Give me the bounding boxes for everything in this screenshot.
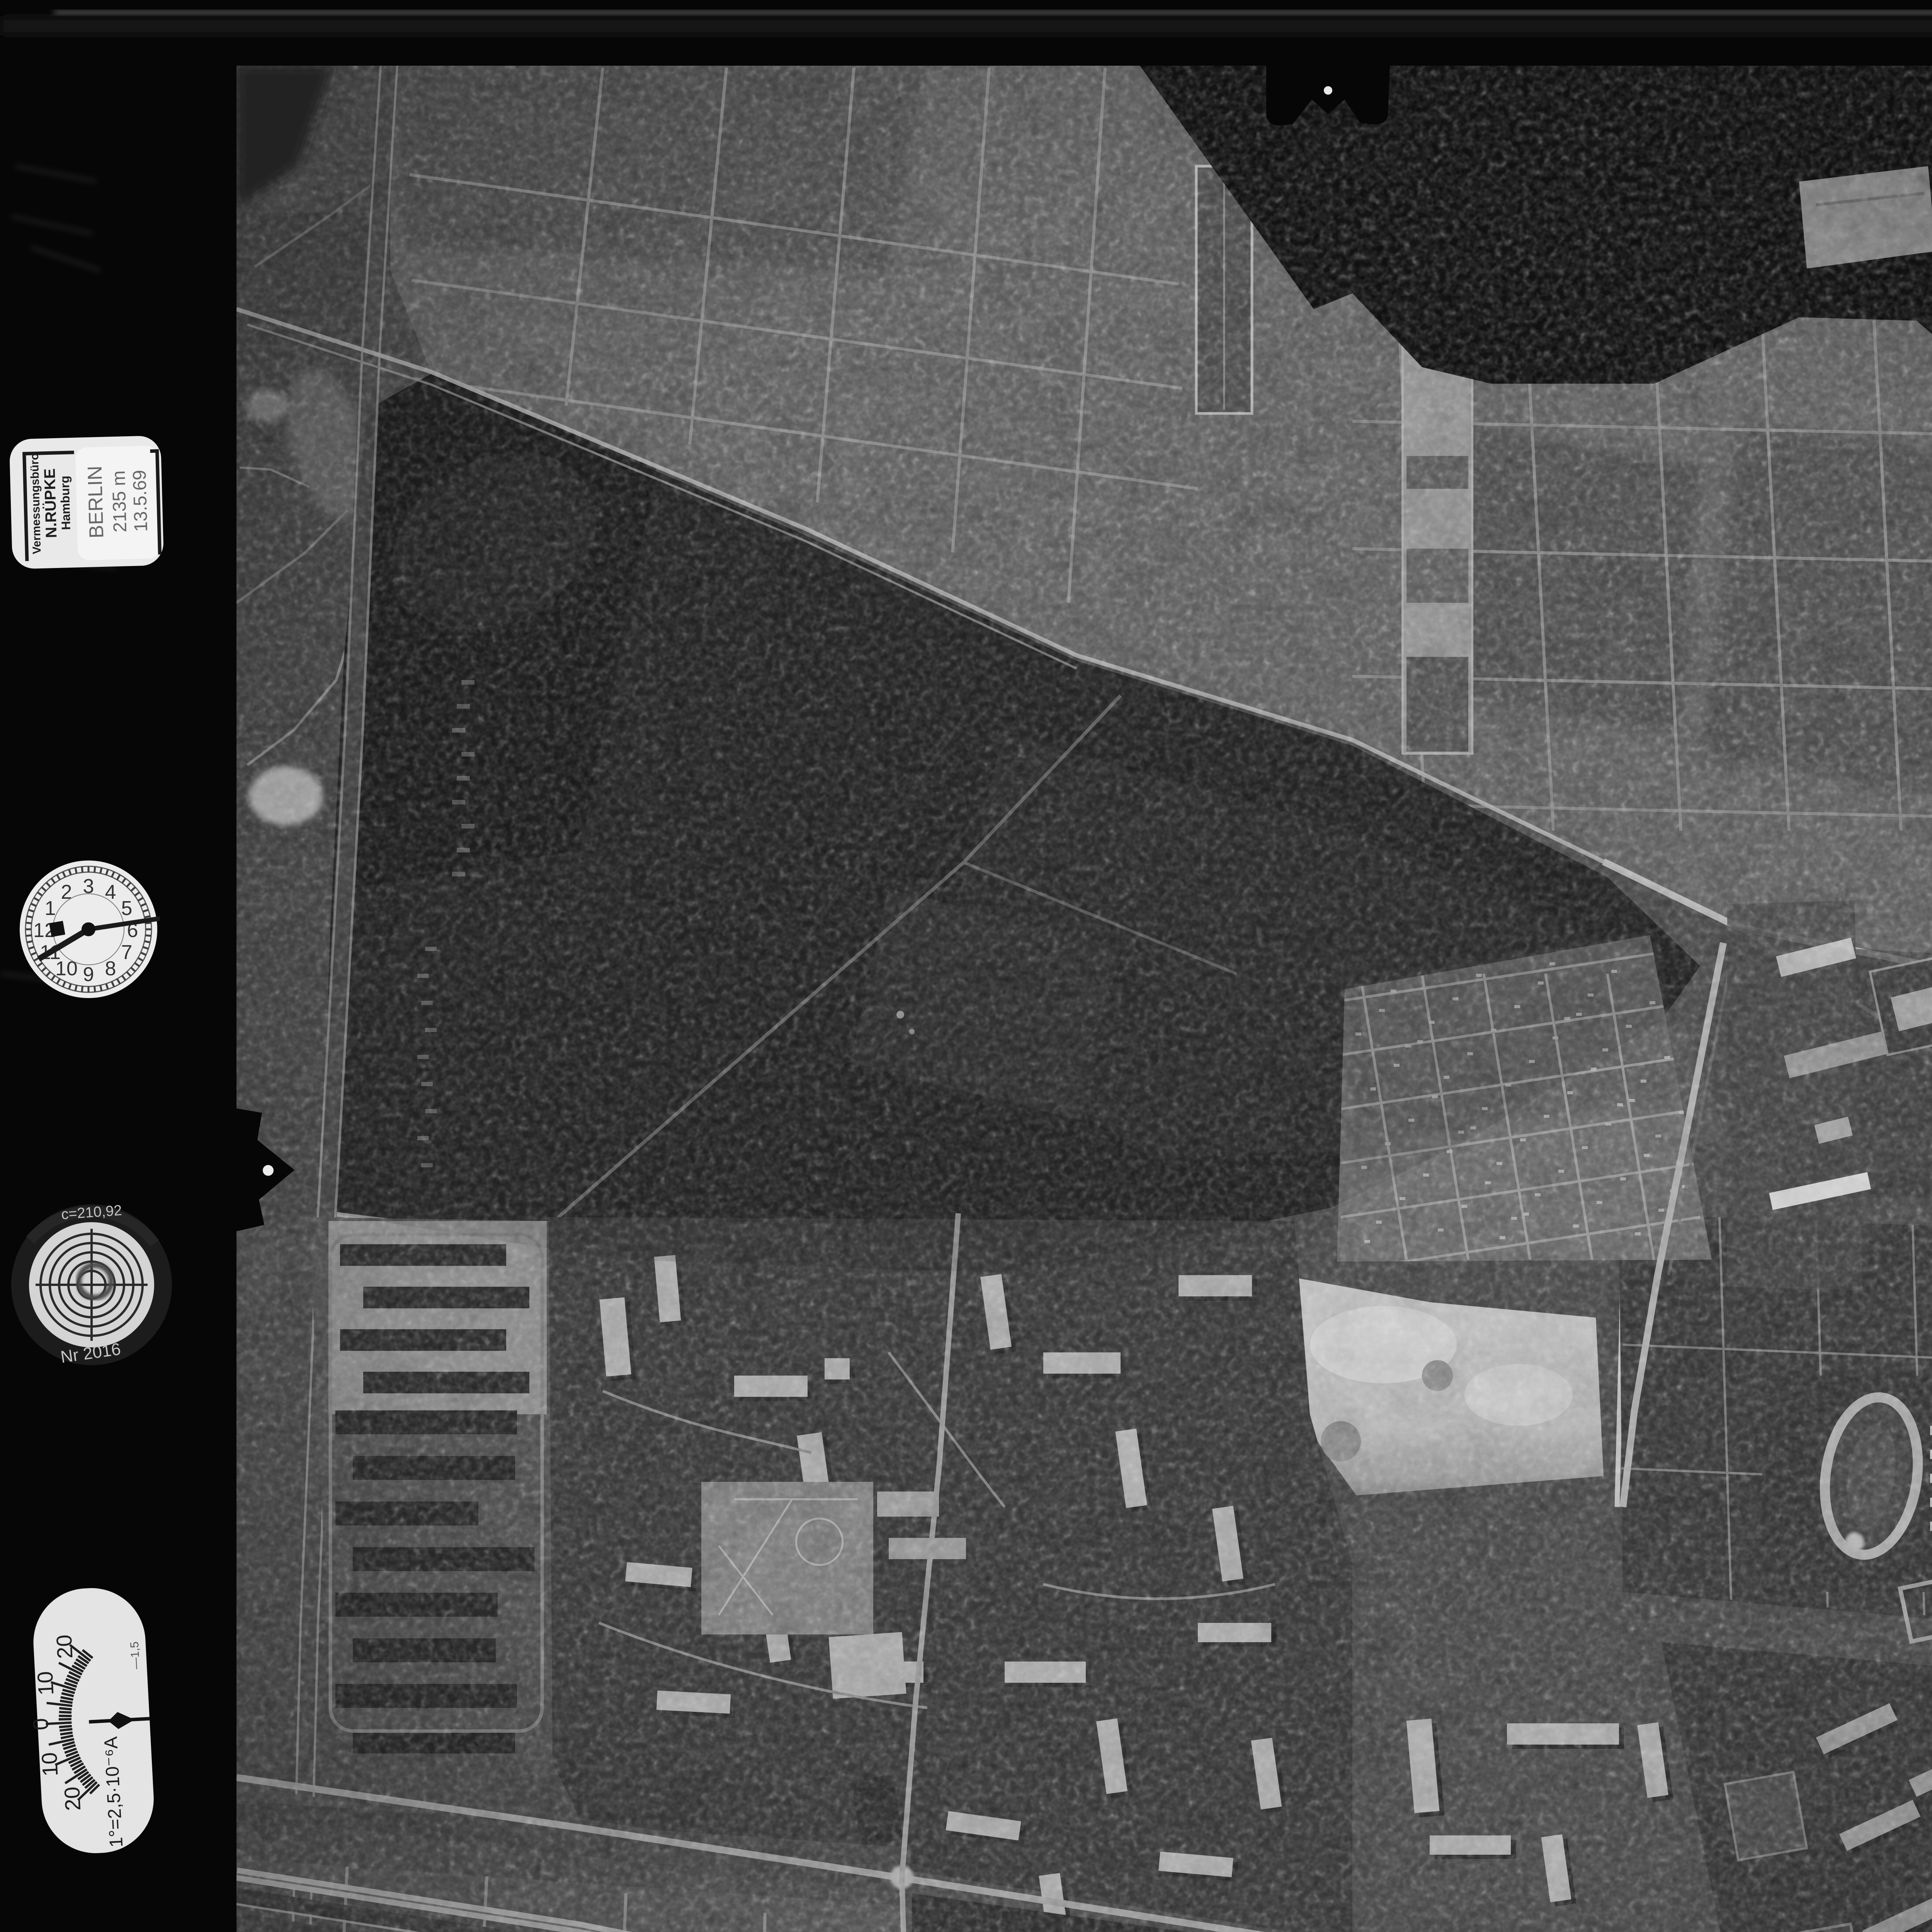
svg-text:10: 10 [37, 1752, 62, 1777]
svg-text:N.RÜPKE: N.RÜPKE [41, 468, 60, 538]
svg-text:9: 9 [83, 963, 94, 986]
svg-text:5: 5 [121, 897, 133, 920]
svg-text:20: 20 [51, 1634, 77, 1660]
svg-text:7: 7 [121, 941, 133, 964]
svg-text:2135 m: 2135 m [109, 470, 131, 532]
svg-text:Hamburg: Hamburg [58, 476, 73, 530]
svg-text:BERLIN: BERLIN [84, 466, 108, 539]
svg-text:20: 20 [60, 1786, 85, 1811]
svg-text:Vermessungsbüro: Vermessungsbüro [28, 453, 44, 554]
svg-text:1: 1 [45, 897, 56, 920]
svg-text:2: 2 [61, 881, 72, 903]
svg-text:8: 8 [105, 957, 116, 980]
svg-text:4: 4 [105, 881, 116, 903]
svg-text:13.5.69: 13.5.69 [129, 469, 151, 532]
svg-text:—1,5: —1,5 [128, 1641, 143, 1669]
svg-text:0: 0 [28, 1718, 53, 1731]
svg-text:10: 10 [32, 1671, 58, 1696]
